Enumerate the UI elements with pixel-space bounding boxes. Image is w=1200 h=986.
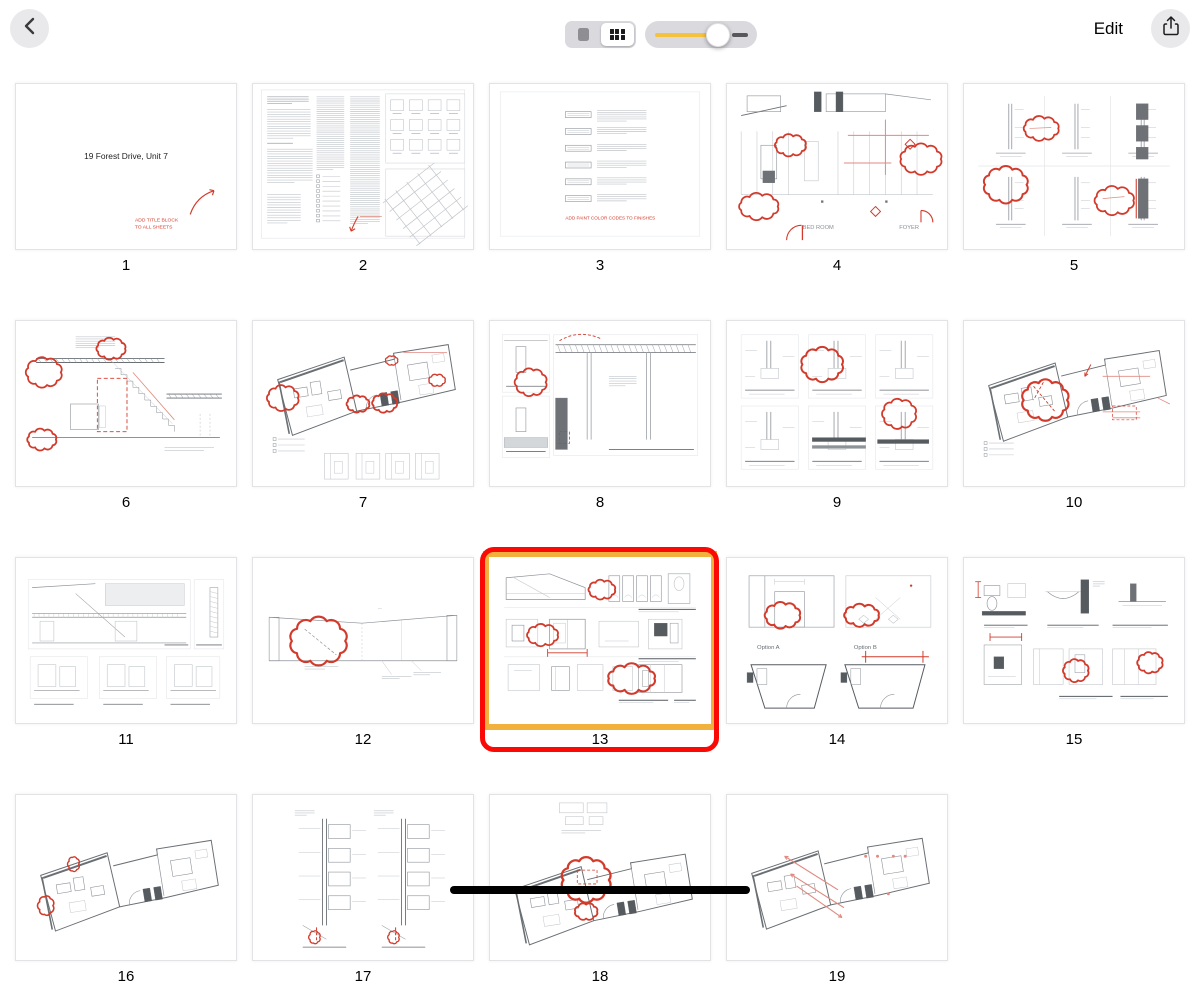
page-thumbnail-16[interactable] bbox=[15, 794, 237, 961]
page-thumbnail-10[interactable] bbox=[963, 320, 1185, 487]
sheet-sketch bbox=[490, 795, 710, 960]
sheet-sketch: 19 Forest Drive, Unit 7ADD TITLE BLOCKTO… bbox=[16, 84, 236, 249]
grid-view-icon bbox=[610, 29, 625, 41]
sheet-sketch: — bbox=[253, 558, 473, 723]
page-cell-2: 2 bbox=[252, 83, 474, 275]
page-number-19: 19 bbox=[829, 968, 846, 986]
page-cell-4: BED ROOMFOYER4 bbox=[726, 83, 948, 275]
view-mode-toggle bbox=[565, 21, 636, 48]
sheet-sketch bbox=[490, 321, 710, 486]
slider-thumb[interactable] bbox=[706, 23, 730, 47]
back-button[interactable] bbox=[10, 9, 49, 48]
page-cell-3: ADD PAINT COLOR CODES TO FINISHES3 bbox=[489, 83, 711, 275]
sheet-sketch bbox=[490, 558, 710, 723]
sheet-sketch: ADD PAINT COLOR CODES TO FINISHES bbox=[490, 84, 710, 249]
page-number-10: 10 bbox=[1066, 494, 1083, 512]
page-number-4: 4 bbox=[833, 257, 841, 275]
page-cell-14: Option AOption B14 bbox=[726, 557, 948, 749]
page-thumbnail-11[interactable] bbox=[15, 557, 237, 724]
sheet-sketch bbox=[253, 795, 473, 960]
page-thumbnail-17[interactable] bbox=[252, 794, 474, 961]
slider-track-remaining bbox=[732, 33, 748, 37]
sheet-sketch bbox=[16, 558, 236, 723]
svg-text:FOYER: FOYER bbox=[899, 225, 919, 231]
page-cell-11: 11 bbox=[15, 557, 237, 749]
home-indicator[interactable] bbox=[450, 886, 750, 894]
page-cell-8: 8 bbox=[489, 320, 711, 512]
page-thumbnail-13[interactable] bbox=[489, 557, 711, 724]
page-cell-1: 19 Forest Drive, Unit 7ADD TITLE BLOCKTO… bbox=[15, 83, 237, 275]
sheet-sketch bbox=[253, 84, 473, 249]
edit-button[interactable]: Edit bbox=[1094, 19, 1123, 39]
view-controls bbox=[565, 21, 757, 48]
chevron-left-icon bbox=[21, 16, 39, 41]
page-number-18: 18 bbox=[592, 968, 609, 986]
page-number-16: 16 bbox=[118, 968, 135, 986]
page-cell-9: 9 bbox=[726, 320, 948, 512]
page-number-8: 8 bbox=[596, 494, 604, 512]
page-cell-10: 10 bbox=[963, 320, 1185, 512]
page-cell-16: 16 bbox=[15, 794, 237, 986]
page-number-11: 11 bbox=[118, 731, 134, 749]
page-grid: 19 Forest Drive, Unit 7ADD TITLE BLOCKTO… bbox=[15, 83, 1185, 986]
page-number-14: 14 bbox=[829, 731, 846, 749]
page-thumbnail-14[interactable]: Option AOption B bbox=[726, 557, 948, 724]
page-cell-5: 5 bbox=[963, 83, 1185, 275]
sheet-sketch bbox=[964, 558, 1184, 723]
page-thumbnail-4[interactable]: BED ROOMFOYER bbox=[726, 83, 948, 250]
page-number-9: 9 bbox=[833, 494, 841, 512]
sheet-sketch: BED ROOMFOYER bbox=[727, 84, 947, 249]
page-cell-6: 6 bbox=[15, 320, 237, 512]
sheet-sketch: Option AOption B bbox=[727, 558, 947, 723]
svg-text:ADD PAINT COLOR CODES TO FINIS: ADD PAINT COLOR CODES TO FINISHES bbox=[565, 215, 655, 220]
page-number-13: 13 bbox=[592, 731, 609, 749]
page-cell-12: —12 bbox=[252, 557, 474, 749]
page-thumbnail-7[interactable] bbox=[252, 320, 474, 487]
svg-text:Option B: Option B bbox=[854, 645, 877, 651]
page-thumbnail-5[interactable] bbox=[963, 83, 1185, 250]
svg-text:BED ROOM: BED ROOM bbox=[803, 225, 834, 231]
view-single-button[interactable] bbox=[567, 23, 601, 46]
share-up-arrow-icon bbox=[1161, 15, 1181, 42]
page-thumbnail-19[interactable] bbox=[726, 794, 948, 961]
share-button[interactable] bbox=[1151, 9, 1190, 48]
svg-text:Option A: Option A bbox=[757, 645, 780, 651]
page-thumbnail-12[interactable]: — bbox=[252, 557, 474, 724]
page-thumbnail-8[interactable] bbox=[489, 320, 711, 487]
sheet-sketch bbox=[964, 84, 1184, 249]
thumbnail-size-slider[interactable] bbox=[645, 21, 757, 48]
single-page-icon bbox=[578, 28, 589, 41]
svg-text:ADD TITLE BLOCK: ADD TITLE BLOCK bbox=[135, 217, 179, 223]
page-number-1: 1 bbox=[122, 257, 130, 275]
svg-text:TO ALL SHEETS: TO ALL SHEETS bbox=[135, 224, 173, 230]
page-number-6: 6 bbox=[122, 494, 130, 512]
sheet-sketch bbox=[964, 321, 1184, 486]
page-number-5: 5 bbox=[1070, 257, 1078, 275]
page-cell-13: 13 bbox=[489, 557, 711, 749]
page-thumbnail-3[interactable]: ADD PAINT COLOR CODES TO FINISHES bbox=[489, 83, 711, 250]
sheet-sketch bbox=[16, 321, 236, 486]
toolbar: Edit bbox=[0, 0, 1200, 66]
page-thumbnail-9[interactable] bbox=[726, 320, 948, 487]
page-cell-7: 7 bbox=[252, 320, 474, 512]
sheet-sketch bbox=[16, 795, 236, 960]
page-thumbnail-1[interactable]: 19 Forest Drive, Unit 7ADD TITLE BLOCKTO… bbox=[15, 83, 237, 250]
page-cell-17: 17 bbox=[252, 794, 474, 986]
page-thumbnail-15[interactable] bbox=[963, 557, 1185, 724]
sheet-sketch bbox=[727, 795, 947, 960]
page-number-2: 2 bbox=[359, 257, 367, 275]
svg-text:19 Forest Drive, Unit 7: 19 Forest Drive, Unit 7 bbox=[84, 151, 168, 161]
page-number-15: 15 bbox=[1066, 731, 1083, 749]
svg-text:—: — bbox=[378, 605, 382, 610]
page-number-3: 3 bbox=[596, 257, 604, 275]
page-thumbnail-18[interactable] bbox=[489, 794, 711, 961]
page-cell-15: 15 bbox=[963, 557, 1185, 749]
sheet-sketch bbox=[727, 321, 947, 486]
page-number-12: 12 bbox=[355, 731, 372, 749]
sheet-sketch bbox=[253, 321, 473, 486]
page-cell-19: 19 bbox=[726, 794, 948, 986]
page-thumbnail-6[interactable] bbox=[15, 320, 237, 487]
page-thumbnail-2[interactable] bbox=[252, 83, 474, 250]
view-grid-button[interactable] bbox=[601, 23, 635, 46]
page-number-7: 7 bbox=[359, 494, 367, 512]
page-number-17: 17 bbox=[355, 968, 372, 986]
